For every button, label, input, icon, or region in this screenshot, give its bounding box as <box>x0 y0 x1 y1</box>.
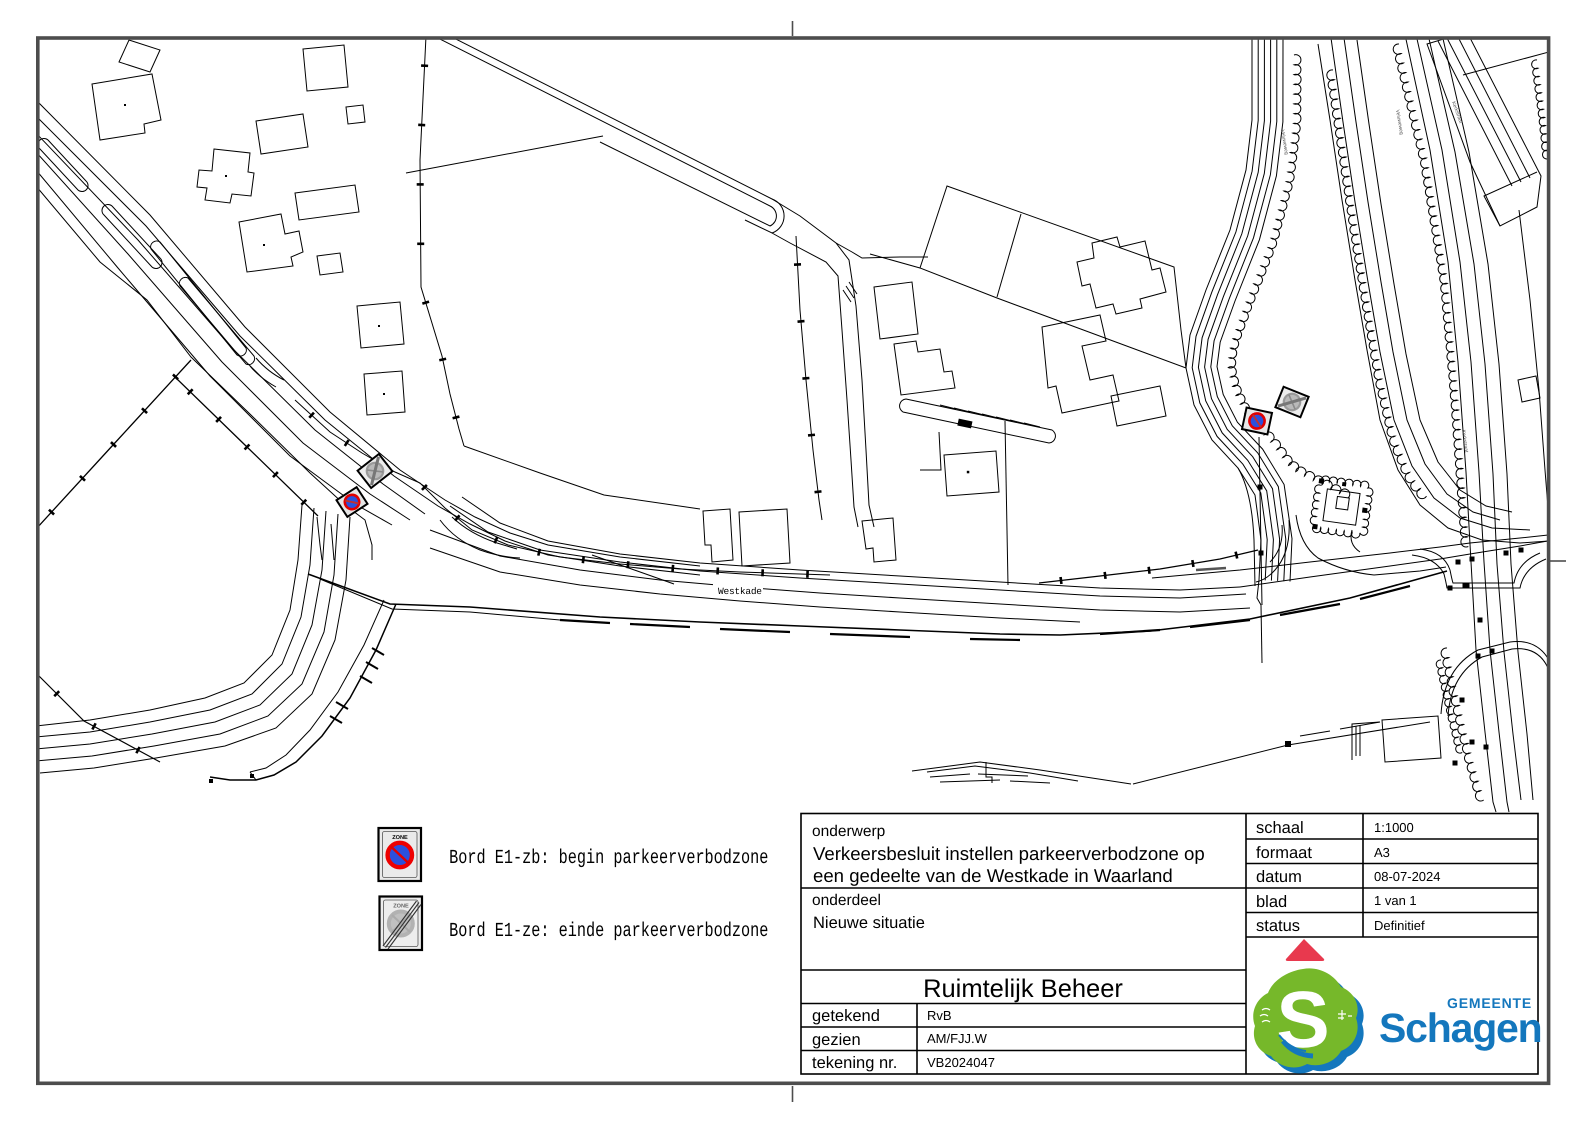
svg-text:een gedeelte van de Westkade i: een gedeelte van de Westkade in Waarland <box>813 865 1173 886</box>
svg-text:Ruimtelijk Beheer: Ruimtelijk Beheer <box>923 975 1123 1003</box>
svg-text:schaal: schaal <box>1256 819 1304 837</box>
svg-text:Schagen: Schagen <box>1379 1005 1542 1051</box>
svg-text:ZONE: ZONE <box>392 835 408 841</box>
svg-text:08-07-2024: 08-07-2024 <box>1374 869 1441 884</box>
svg-text:1 van 1: 1 van 1 <box>1374 893 1417 908</box>
svg-text:gezien: gezien <box>812 1031 861 1049</box>
svg-text:onderdeel: onderdeel <box>812 892 881 909</box>
svg-text:Bord E1-ze: einde parkeerverbo: Bord E1-ze: einde parkeerverbodzone <box>449 920 768 943</box>
svg-text:AM/FJJ.W: AM/FJJ.W <box>927 1031 988 1046</box>
svg-text:status: status <box>1256 917 1300 935</box>
svg-text:Verkeersbesluit instellen park: Verkeersbesluit instellen parkeerverbodz… <box>813 843 1205 864</box>
svg-text:Definitief: Definitief <box>1374 918 1425 933</box>
svg-text:onderwerp: onderwerp <box>812 823 885 840</box>
svg-text:RvB: RvB <box>927 1008 952 1023</box>
svg-text:VB2024047: VB2024047 <box>927 1055 995 1070</box>
svg-text:blad: blad <box>1256 893 1287 911</box>
svg-text:getekend: getekend <box>812 1007 880 1025</box>
svg-text:A3: A3 <box>1374 845 1390 860</box>
svg-text:ZONE: ZONE <box>393 904 409 910</box>
svg-text:formaat: formaat <box>1256 844 1312 862</box>
svg-text:datum: datum <box>1256 868 1302 886</box>
svg-text:Bord E1-zb: begin parkeerverbo: Bord E1-zb: begin parkeerverbodzone <box>449 847 768 870</box>
svg-text:1:1000: 1:1000 <box>1374 820 1414 835</box>
svg-text:tekening nr.: tekening nr. <box>812 1054 897 1072</box>
svg-text:Nieuwe situatie: Nieuwe situatie <box>813 914 925 932</box>
svg-text:Westkade: Westkade <box>718 586 762 597</box>
